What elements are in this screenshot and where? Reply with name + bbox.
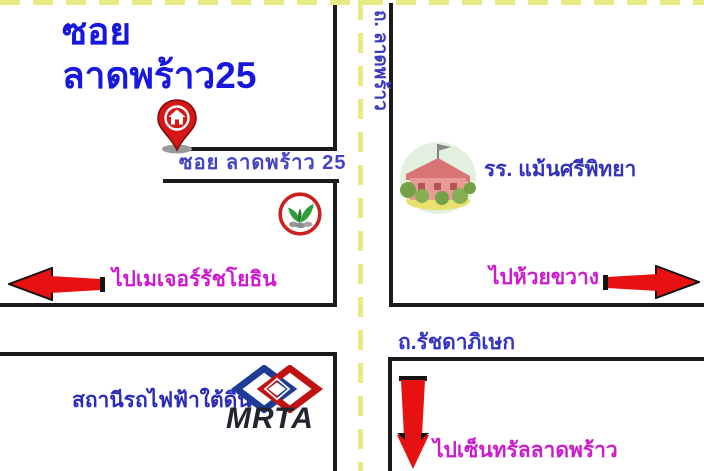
ladprao25-map: ซอย ลาดพร้าว25 ซอย ลาดพร้าว 25 ถ. ลาดพร้… [0,0,704,471]
red-arrow-left-icon [8,267,106,301]
to-central-ladprao-label: ไปเซ็นทรัลลาดพร้าว [433,438,618,464]
kasikorn-bank-logo-icon [276,191,324,237]
ladprao-road-edge-left-bottom [333,355,337,471]
ladprao-road-label: ถ. ลาดพร้าว [368,10,392,111]
school-building-icon [396,138,480,216]
to-huai-khwang-label: ไปห้วยขวาง [489,265,599,291]
ladprao-road-edge-left-mid [333,179,337,307]
ladprao-road-edge-right-bottom [388,357,392,471]
mrta-logo-text: MRTA [226,400,314,438]
ratchadaphisek-center-dash-line [0,0,704,5]
to-major-ratchayothin-label: ไปเมเจอร์รัชโยธิน [112,267,277,293]
page-title: ซอย ลาดพร้าว25 [62,10,256,97]
subway-station-label: สถานีรถไฟฟ้าใต้ดิน [72,388,252,414]
ratchadaphisek-edge-bottom-left [0,352,337,356]
red-arrow-right-icon [602,265,700,299]
red-arrow-down-icon [396,376,430,470]
page-title-line-1: ซอย [62,10,256,54]
ladprao-center-dash-line [358,0,363,471]
ratchadaphisek-edge-top-right [389,303,704,307]
ratchadaphisek-edge-top-left [0,303,337,307]
soi-ladprao25-label: ซอย ลาดพร้าว 25 [179,151,347,176]
page-title-line-2: ลาดพร้าว25 [62,54,256,98]
ratchadaphisek-road-label: ถ.รัชดาภิเษก [398,330,515,356]
home-pin-icon [155,99,199,154]
soi-road-edge-bottom [163,179,339,183]
school-label: รร. แม้นศรีพิทยา [484,157,636,183]
ladprao-road-edge-left-top [333,5,337,151]
ratchadaphisek-edge-bottom-right [388,357,704,361]
